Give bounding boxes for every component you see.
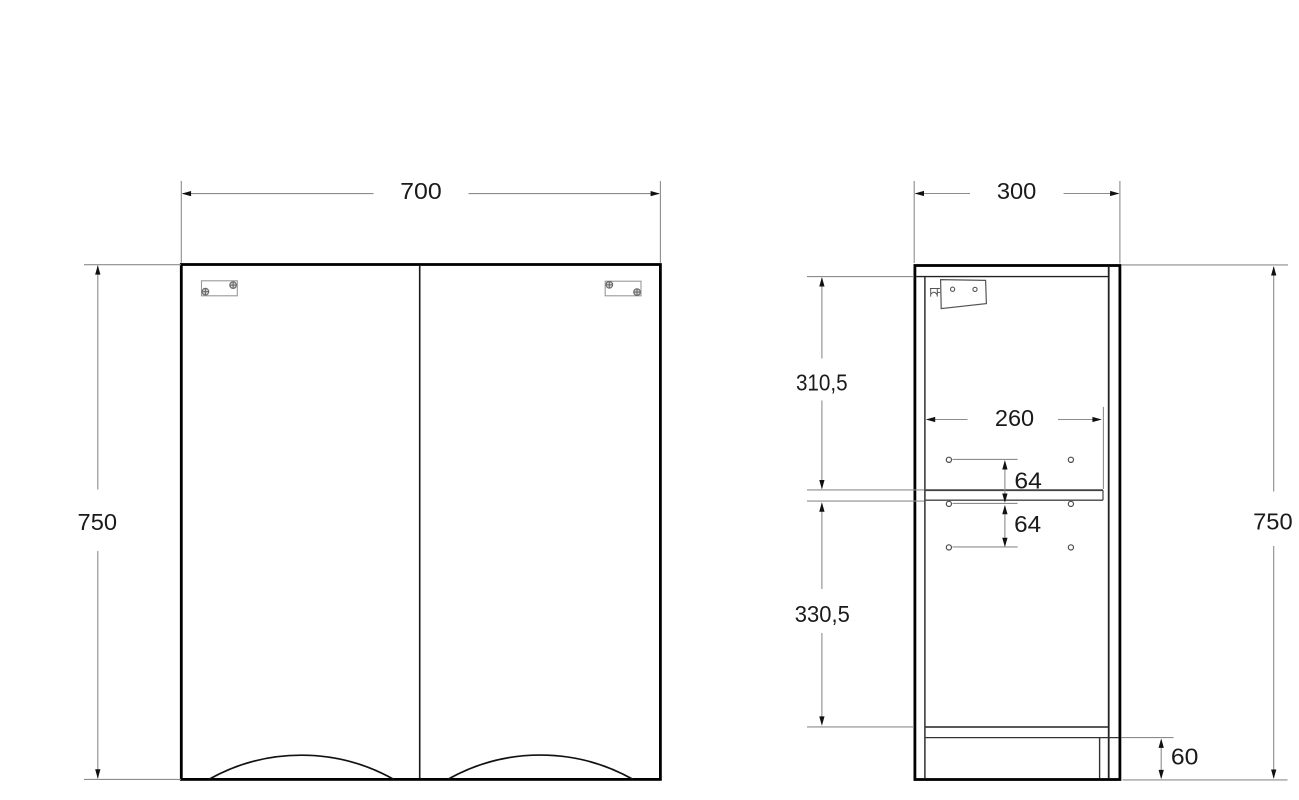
svg-text:330,5: 330,5 [795,601,850,627]
svg-text:310,5: 310,5 [796,369,848,395]
svg-text:64: 64 [1014,467,1042,493]
svg-text:750: 750 [78,509,118,535]
svg-text:700: 700 [400,178,442,204]
svg-text:750: 750 [1253,508,1293,534]
svg-text:260: 260 [995,405,1034,431]
svg-text:64: 64 [1014,511,1041,537]
svg-text:60: 60 [1171,744,1199,770]
svg-text:300: 300 [997,178,1037,204]
